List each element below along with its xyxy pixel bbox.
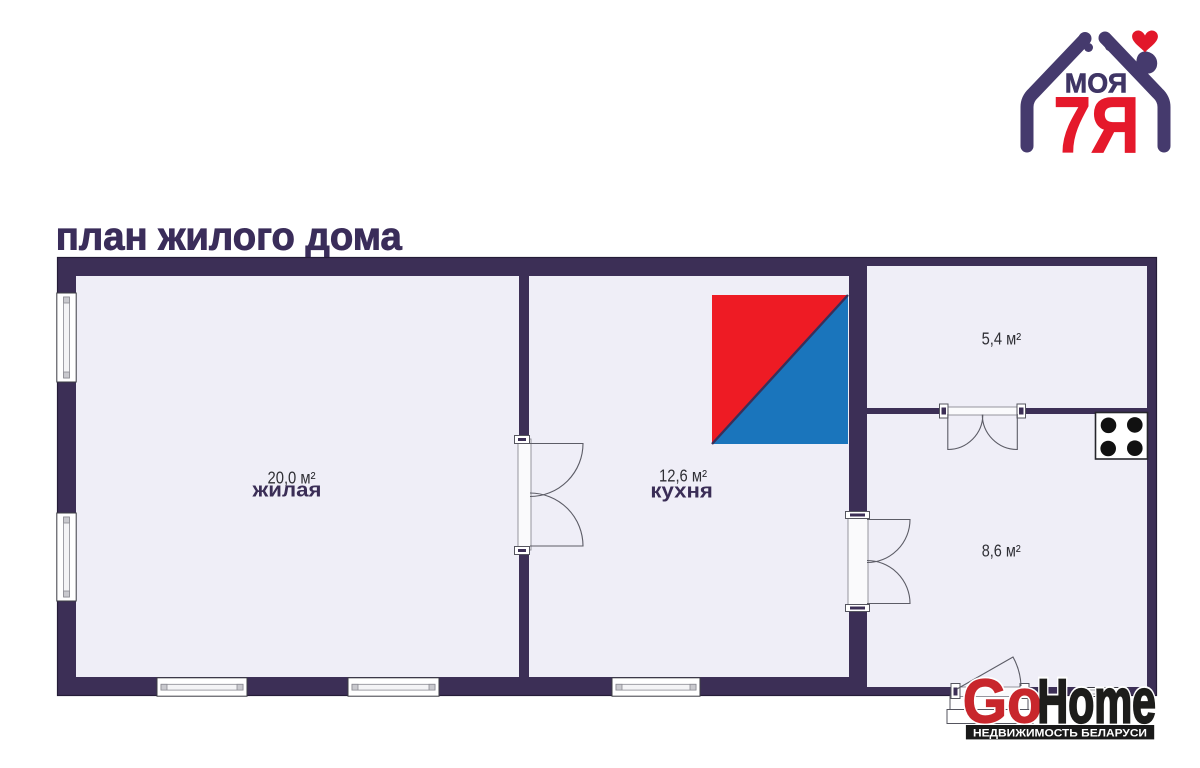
- svg-text:кухня: кухня: [650, 480, 713, 502]
- svg-text:8,6 м²: 8,6 м²: [982, 541, 1021, 561]
- svg-text:7Я: 7Я: [1053, 80, 1139, 169]
- svg-text:НЕДВИЖИМОСТЬ БЕЛАРУСИ: НЕДВИЖИМОСТЬ БЕЛАРУСИ: [973, 728, 1147, 740]
- svg-text:план жилого дома: план жилого дома: [56, 216, 402, 259]
- svg-text:жилая: жилая: [251, 480, 321, 502]
- svg-text:5,4 м²: 5,4 м²: [982, 328, 1022, 348]
